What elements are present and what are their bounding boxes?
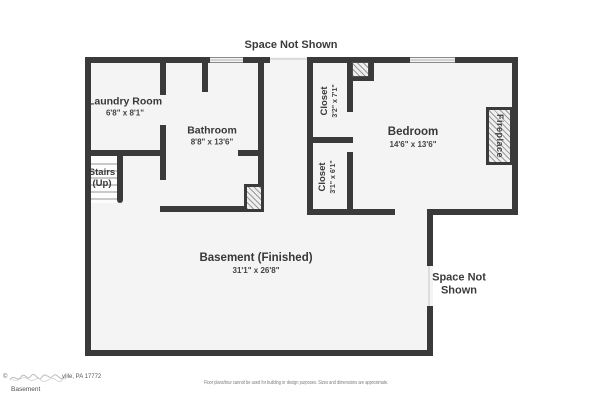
- wall-segment: [202, 57, 208, 92]
- wall-segment: [160, 206, 246, 212]
- window: [210, 57, 243, 63]
- wall-segment: [428, 209, 518, 215]
- floor-fill-lower: [85, 200, 433, 356]
- wall-segment: [427, 306, 433, 356]
- bathroom-label: Bathroom 8'8" x 13'6": [187, 125, 237, 148]
- stair-tread: [91, 198, 117, 200]
- bathroom-chase-hatch: [244, 184, 264, 212]
- bedroom-label: Bedroom 14'6" x 13'6": [388, 126, 438, 150]
- address-tail: ville, PA 17772: [62, 374, 101, 380]
- stairs-label: Stairs (Up): [89, 168, 115, 190]
- wall-segment: [238, 150, 264, 156]
- disclaimer-text: Floor plans/tour cannot be used for buil…: [204, 380, 388, 386]
- wall-segment: [347, 152, 353, 215]
- opening-top: [270, 58, 307, 60]
- floor-fill-upper: [85, 57, 518, 215]
- closet-bottom-label: Closet 3'1" x 6'1": [318, 160, 338, 193]
- space-not-shown-top-label: Space Not Shown: [245, 39, 338, 52]
- chimney-hatch: [352, 62, 369, 77]
- wall-segment: [160, 57, 166, 95]
- laundry-room-label: Laundry Room 6'8" x 8'1": [88, 96, 162, 119]
- wall-segment: [427, 209, 433, 266]
- wall-segment: [85, 350, 433, 356]
- wall-segment: [307, 137, 353, 143]
- wall-segment: [117, 156, 123, 203]
- floorplan-canvas: Space Not Shown Space Not Shown Laundry …: [0, 0, 600, 400]
- stair-tread: [91, 163, 117, 165]
- wall-segment: [307, 57, 313, 215]
- stair-tread: [91, 191, 117, 193]
- basement-label: Basement (Finished) 31'1" x 26'8": [199, 252, 312, 276]
- copyright-mark: ©: [3, 374, 7, 380]
- opening-right: [428, 266, 430, 306]
- fireplace-label: Fireplace: [495, 114, 505, 158]
- closet-top-label: Closet 3'2" x 7'1": [320, 84, 340, 117]
- window: [410, 57, 455, 63]
- wall-segment: [85, 150, 166, 156]
- floor-name: Basement: [11, 386, 40, 393]
- space-not-shown-right-label: Space Not Shown: [432, 272, 486, 297]
- wall-segment: [258, 57, 264, 186]
